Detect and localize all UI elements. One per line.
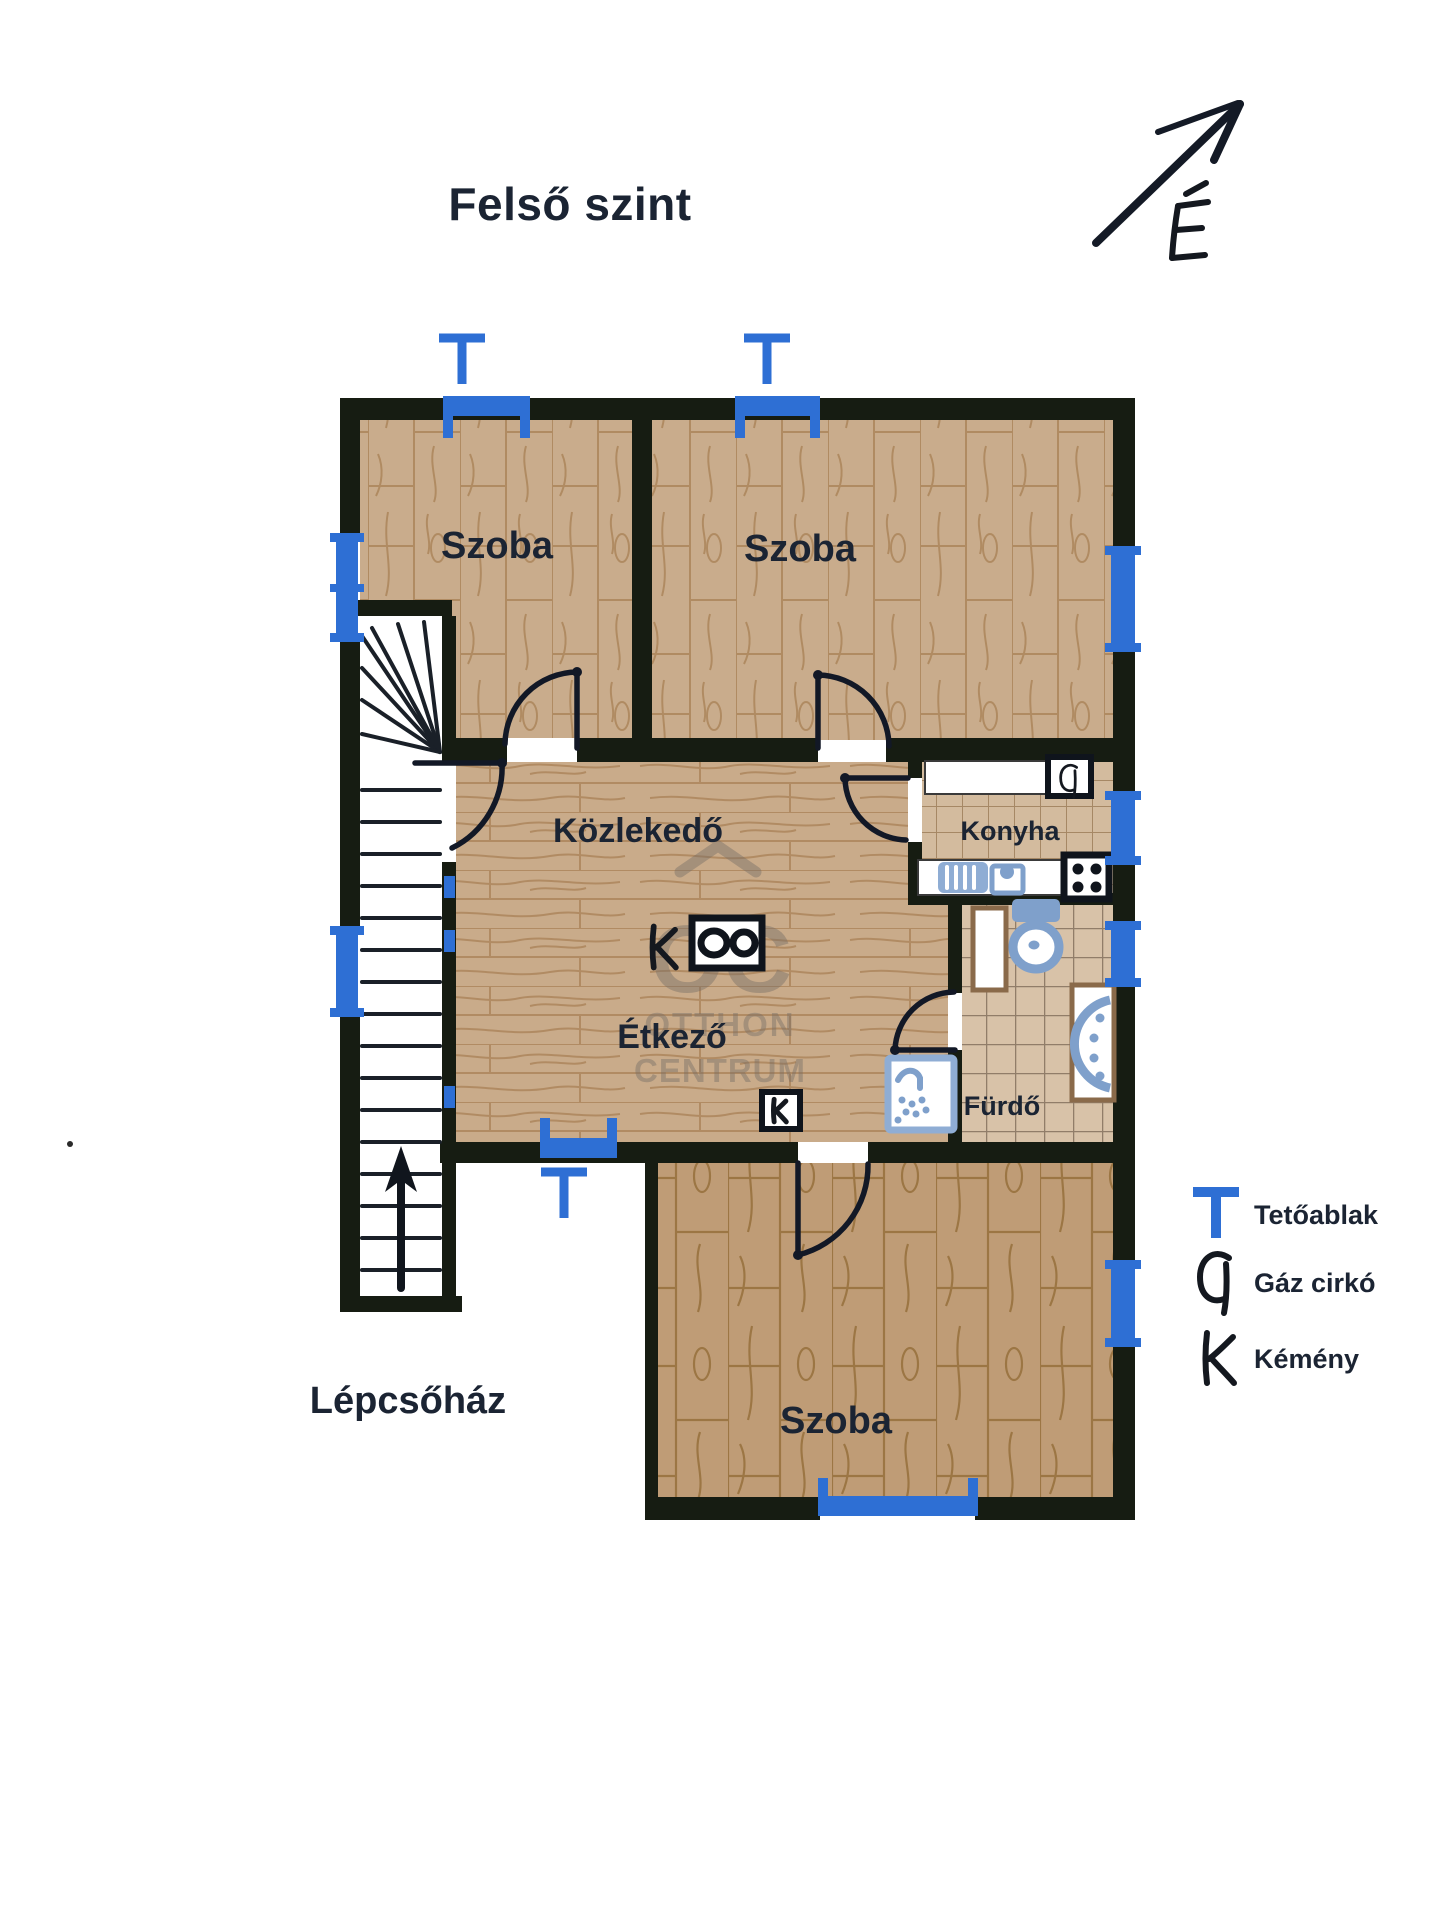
label-szoba-2: Szoba <box>744 528 857 570</box>
legend-chimney-label: Kémény <box>1254 1344 1359 1374</box>
legend-item-roof-window: Tetőablak <box>1193 1192 1379 1238</box>
floor-plan-canvas: OC OTTHON CENTRUM <box>0 0 1440 1920</box>
wall-hall-top-a <box>452 738 507 762</box>
legend: Tetőablak Gáz cirkó Kémény <box>1193 1192 1379 1383</box>
label-staircase: Lépcsőház <box>310 1380 506 1422</box>
wall-room-divider <box>632 420 652 740</box>
legend-gas-boiler-icon <box>1200 1254 1229 1313</box>
label-kitchen: Konyha <box>960 816 1060 846</box>
label-hallway: Közlekedő <box>553 812 723 850</box>
wall-left-c <box>340 1015 360 1311</box>
wall-kitchen-left-a <box>908 750 922 778</box>
north-arrow <box>1096 103 1240 258</box>
staircase <box>362 622 455 1288</box>
chimney-box-small-icon <box>762 1092 800 1129</box>
room-szoba-3-floor <box>658 1163 1113 1497</box>
wall-bath-left-a <box>948 905 962 993</box>
radiator-icon <box>973 908 1006 990</box>
wall-south-a <box>440 1142 798 1163</box>
wall-left-b <box>340 640 360 928</box>
wall-right-b <box>1113 650 1135 793</box>
watermark-line2: CENTRUM <box>634 1052 806 1089</box>
wall-left-a <box>340 398 360 535</box>
label-bathroom: Fürdő <box>964 1091 1040 1121</box>
label-szoba-3: Szoba <box>780 1400 893 1442</box>
ink-dot <box>67 1141 73 1147</box>
legend-item-gas-boiler: Gáz cirkó <box>1200 1254 1376 1313</box>
legend-chimney-icon <box>1206 1333 1235 1383</box>
wall-stair-right-c <box>442 1163 456 1312</box>
label-szoba-1: Szoba <box>441 525 554 567</box>
wall-right-a <box>1113 398 1135 548</box>
wall-bottom-a <box>645 1497 820 1520</box>
chimney-box-icon <box>692 918 762 968</box>
legend-roof-window-icon <box>1193 1192 1239 1238</box>
wall-hall-top-b <box>577 738 818 762</box>
window-stairs-left <box>330 926 364 1017</box>
page-title: Felső szint <box>448 178 691 230</box>
north-label-e <box>1172 183 1208 258</box>
legend-gas-boiler-label: Gáz cirkó <box>1254 1268 1376 1298</box>
roof-window-marker-3 <box>541 1172 587 1218</box>
legend-item-chimney: Kémény <box>1206 1333 1360 1383</box>
window-szoba1-left <box>330 533 364 642</box>
stair-direction-arrow <box>385 1146 417 1288</box>
washbasin-icon <box>1072 985 1114 1100</box>
roof-window-marker-2 <box>744 338 790 384</box>
wall-right-e <box>1113 1345 1135 1520</box>
wall-hall-top-c <box>886 738 1135 762</box>
wall-right-c <box>1113 863 1135 923</box>
wall-south-b <box>868 1142 1135 1163</box>
room-szoba-2-floor <box>652 420 1113 740</box>
wall-szoba3-left <box>645 1163 658 1520</box>
stove-icon <box>1064 855 1109 899</box>
wall-bottom-b <box>975 1497 1135 1520</box>
wall-stair-bottom <box>340 1296 462 1312</box>
floor-plan-page: OC OTTHON CENTRUM <box>0 0 1440 1920</box>
label-dining: Étkező <box>617 1018 727 1056</box>
stair-winders <box>362 622 440 752</box>
legend-roof-window-label: Tetőablak <box>1254 1200 1379 1230</box>
toilet-icon <box>1012 899 1060 969</box>
roof-window-marker-1 <box>439 338 485 384</box>
shower-icon <box>888 1058 954 1130</box>
kitchen-counter-top <box>925 761 1049 794</box>
